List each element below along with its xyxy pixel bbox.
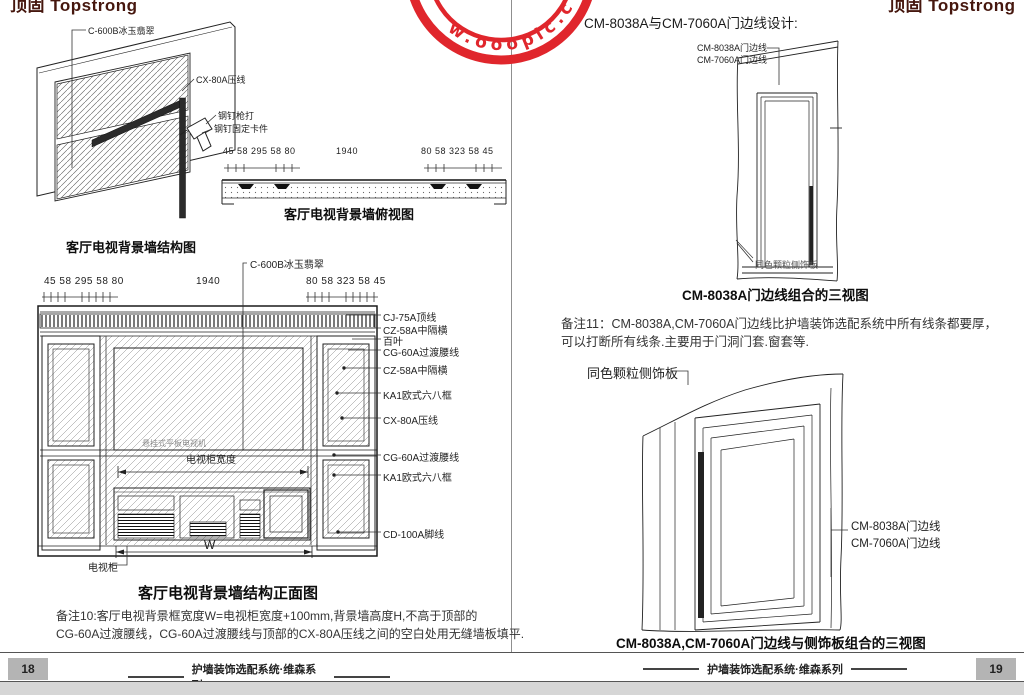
tv-wall-isometric-diagram xyxy=(25,18,245,248)
d2-edge-label-2: CM-7060A门边线 xyxy=(851,535,940,551)
frontview-top-label: C-600B冰玉翡翠 xyxy=(250,256,324,271)
side-label-cx80a: CX-80A压线 xyxy=(383,412,438,427)
side-label-ka1-2: KA1欧式六八框 xyxy=(383,469,452,484)
footer-rule xyxy=(128,676,184,678)
note10-line2: CG-60A过渡腰线，CG-60A过渡腰线与顶部的CX-80A压线之间的空白处用… xyxy=(56,625,524,642)
iso-panel-label: C-600B冰玉翡翠 xyxy=(88,24,155,37)
door-edge-sidepanel-perspective-diagram xyxy=(585,358,850,638)
note11-line1: 备注11：CM-8038A,CM-7060A门边线比护墙装饰选配系统中所有线条都… xyxy=(561,313,997,332)
frontview-dims-center: 1940 xyxy=(196,276,220,287)
d1-side-panel-label: 同色颗粒侧饰板 xyxy=(755,258,818,271)
footer-top-rule xyxy=(0,652,1024,653)
brand-logo-right: 顶固 Topstrong xyxy=(888,0,1016,16)
d1-edge-label-2: CM-7060A门边线 xyxy=(697,53,767,66)
tv-cabinet-label: 电视柜 xyxy=(88,559,118,574)
frontview-dims-left: 45 58 295 58 80 xyxy=(44,276,124,287)
d2-caption: CM-8038A,CM-7060A门边线与侧饰板组合的三视图 xyxy=(616,632,926,652)
footer-series-title: 护墙装饰选配系统·维森系列 xyxy=(707,661,843,677)
page-number-right: 19 xyxy=(976,658,1016,680)
tv-wall-topview-diagram xyxy=(218,160,510,210)
footer-rule xyxy=(851,668,907,670)
footer-rule xyxy=(334,676,390,678)
footer-series-right: 护墙装饰选配系统·维森系列 xyxy=(640,661,910,677)
width-symbol-label: W xyxy=(204,538,215,552)
topview-dims-right: 80 58 323 58 45 xyxy=(421,146,494,156)
tv-area-label: 悬挂式平板电视机 xyxy=(142,438,206,449)
d1-caption: CM-8038A门边线组合的三视图 xyxy=(682,284,869,304)
page-divider xyxy=(511,0,512,653)
side-label-ka1-1: KA1欧式六八框 xyxy=(383,387,452,402)
page-number-left: 18 xyxy=(8,658,48,680)
door-edge-design-header: CM-8038A与CM-7060A门边线设计: xyxy=(584,12,798,32)
frontview-caption: 客厅电视背景墙结构正面图 xyxy=(138,582,318,603)
iso-trim-label: CX-80A压线 xyxy=(196,73,246,86)
note10-line1: 备注10:客厅电视背景框宽度W=电视柜宽度+100mm,背景墙高度H,不高于顶部… xyxy=(56,607,477,624)
topview-caption: 客厅电视背景墙俯视图 xyxy=(284,204,414,223)
topview-dims-center: 1940 xyxy=(336,146,358,156)
brand-logo-left: 顶固 Topstrong xyxy=(10,0,138,16)
tv-wall-frontview-diagram xyxy=(36,300,381,565)
footer-rule xyxy=(643,668,699,670)
iso-nail-label-2: 钢钉固定卡件 xyxy=(214,122,268,135)
d2-edge-label-1: CM-8038A门边线 xyxy=(851,518,940,534)
iso-nail-label-1: 钢钉枪打 xyxy=(218,109,254,122)
topview-dims-left: 45 58 295 58 80 xyxy=(223,146,296,156)
note11-line2: 可以打断所有线条.主要用于门洞门套.窗套等. xyxy=(561,331,809,350)
side-label-cz58a-2: CZ-58A中隔横 xyxy=(383,362,447,377)
iso-caption: 客厅电视背景墙结构图 xyxy=(66,237,196,256)
frontview-dims-right: 80 58 323 58 45 xyxy=(306,276,386,287)
watermark-stamp: w.ooopic.c xyxy=(386,0,616,85)
side-label-cg60a-1: CG-60A过渡腰线 xyxy=(383,344,459,359)
side-label-cd100a: CD-100A脚线 xyxy=(383,526,444,541)
tv-width-label: 电视柜宽度 xyxy=(186,451,236,466)
door-edge-elevation-diagram xyxy=(690,36,880,291)
side-label-cg60a-2: CG-60A过渡腰线 xyxy=(383,449,459,464)
footer-bottom-bar xyxy=(0,682,1024,695)
catalog-spread: 顶固 Topstrong 顶固 Topstrong C-600B冰玉翡翠 CX-… xyxy=(0,0,1024,695)
